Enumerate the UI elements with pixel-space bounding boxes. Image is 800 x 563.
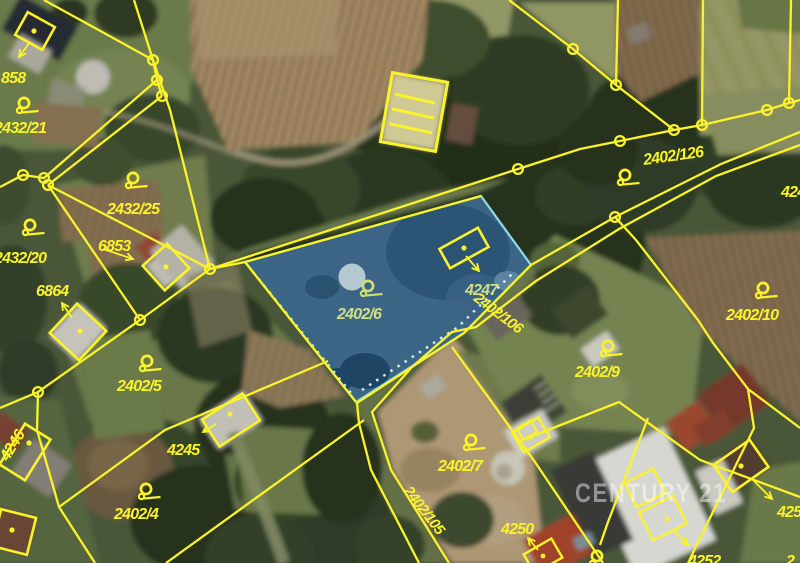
svg-text:2: 2 xyxy=(785,553,795,563)
svg-text:6853: 6853 xyxy=(98,238,131,255)
svg-text:424: 424 xyxy=(780,184,800,201)
svg-text:2432/20: 2432/20 xyxy=(0,250,47,267)
svg-text:2432/25: 2432/25 xyxy=(106,201,161,218)
svg-text:CENTURY 21: CENTURY 21 xyxy=(575,478,727,508)
svg-text:2432/21: 2432/21 xyxy=(0,120,47,137)
svg-text:4250: 4250 xyxy=(500,521,534,538)
svg-text:2402/5: 2402/5 xyxy=(116,378,163,395)
svg-text:2402/7: 2402/7 xyxy=(437,458,484,475)
svg-text:2402/4: 2402/4 xyxy=(113,506,159,523)
svg-text:2402/10: 2402/10 xyxy=(725,307,779,324)
svg-text:2402/9: 2402/9 xyxy=(574,364,620,381)
svg-text:4245: 4245 xyxy=(166,442,201,459)
svg-text:6864: 6864 xyxy=(36,283,69,300)
svg-text:2402/6: 2402/6 xyxy=(336,306,382,323)
svg-text:858: 858 xyxy=(1,70,26,87)
svg-text:425: 425 xyxy=(776,504,800,521)
svg-text:4252: 4252 xyxy=(687,553,721,563)
